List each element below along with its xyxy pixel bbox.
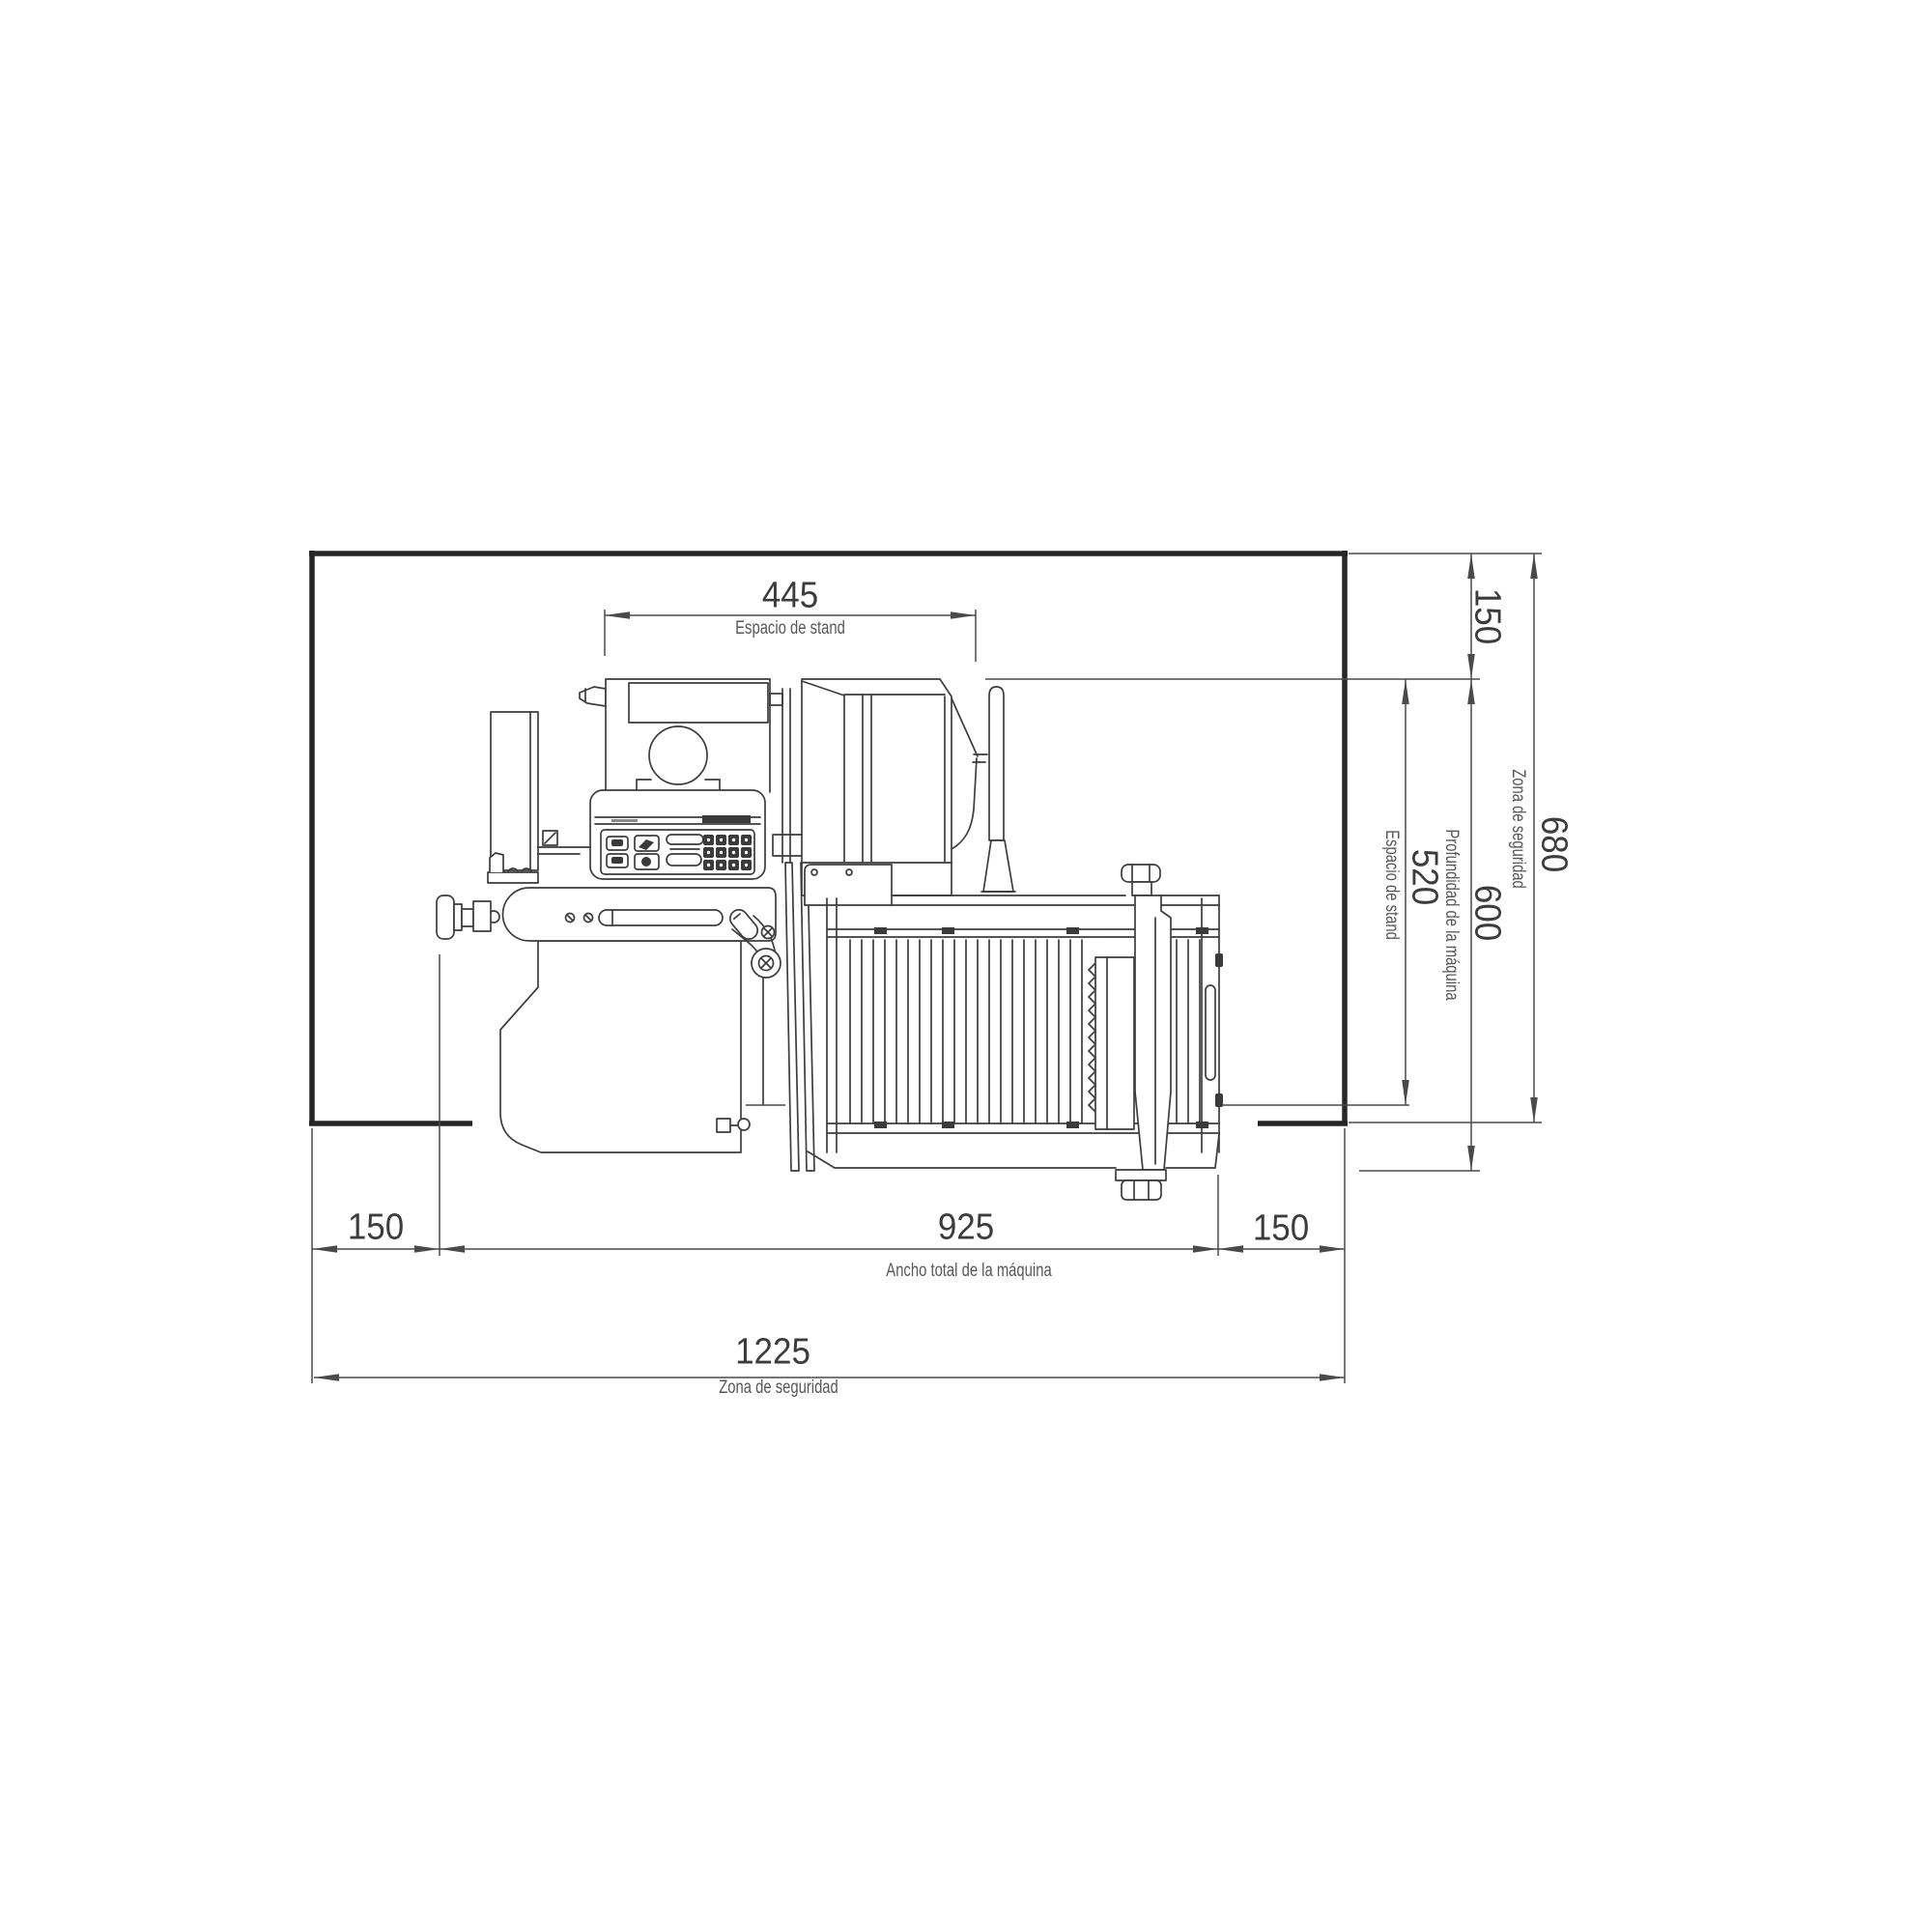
dim-safety-depth-label: Zona de seguridad [1507,769,1528,889]
clamp-knob-top [1122,865,1160,895]
dim-stand-depth-value: 520 [1404,849,1445,905]
dim-stand-width-label: Espacio de stand [735,618,845,639]
dim-top-margin-value: 150 [1466,588,1508,644]
dimension-drawing-page: 445 Espacio de stand 150 680 Zona de seg… [0,0,1932,1932]
product-funnel [802,679,987,895]
carriage-handle-slot [1206,953,1223,1107]
dim-machine-depth-value: 600 [1466,885,1508,941]
dim-safety-width-label: Zona de seguridad [719,1378,838,1399]
dim-safety-depth-value: 680 [1533,816,1575,872]
leveling-foot [1116,1170,1166,1200]
dimension-lines [312,554,1542,1383]
dim-safety-width-value: 1225 [735,1332,810,1374]
motor-housing [606,679,782,792]
lower-body-casing [500,941,750,1152]
drawing-svg [0,0,1932,1932]
dim-stand-width-value: 445 [762,576,818,617]
blade-guard-bar [981,687,1015,892]
dim-left-margin-value: 150 [348,1207,404,1249]
machine-drawing [437,679,1223,1200]
dim-stand-depth-label: Espacio de stand [1380,830,1402,940]
extension-lines [312,554,1542,1383]
carriage-spout [580,687,606,706]
dim-machine-width-value: 925 [938,1207,994,1249]
sharpener-plate [488,712,591,883]
thickness-knob [437,895,491,939]
dim-machine-width-label: Ancho total de la máquina [886,1261,1051,1282]
control-panel [590,790,765,879]
dim-right-margin-value: 150 [1253,1208,1309,1250]
